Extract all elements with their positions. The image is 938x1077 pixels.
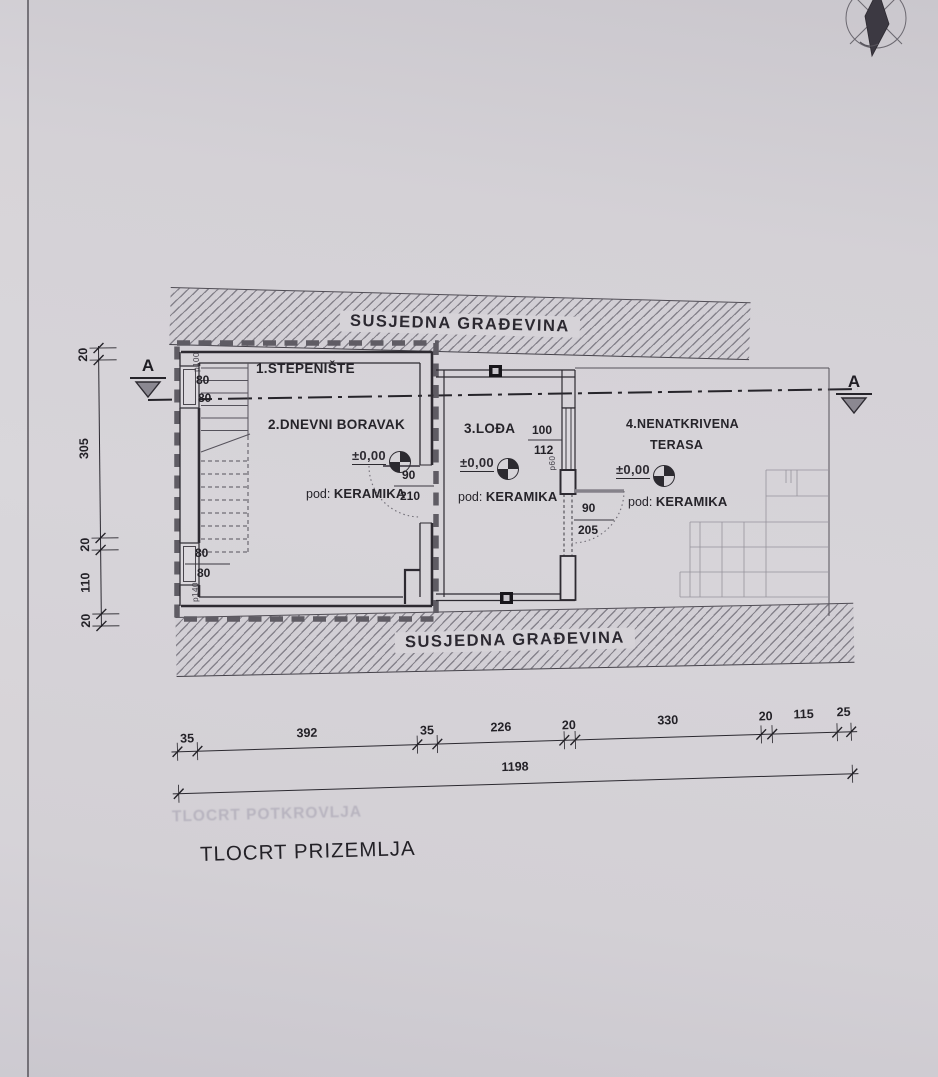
room-label-lodja: 3.LOĐA bbox=[464, 421, 515, 436]
section-line bbox=[148, 389, 858, 400]
section-triangle-icon bbox=[133, 380, 163, 400]
dim-lines-v bbox=[60, 340, 139, 641]
room-label-stepeniste: 1.STEPENIŠTE bbox=[256, 361, 355, 376]
floor-terasa: pod: KERAMIKA bbox=[628, 494, 727, 509]
floor-value: KERAMIKA bbox=[486, 489, 558, 504]
lodja-columns bbox=[489, 365, 513, 604]
lodja-walls bbox=[436, 370, 576, 601]
level-symbol-icon bbox=[653, 465, 675, 487]
drawing-sheet: SUSJEDNA GRAĐEVINA SUSJEDNA GRAĐEVINA bbox=[0, 0, 938, 1077]
block1-walls bbox=[180, 352, 432, 606]
dim-h-8: 25 bbox=[821, 704, 865, 719]
floor-value: KERAMIKA bbox=[334, 486, 406, 501]
dim-h-total: 1198 bbox=[493, 759, 537, 774]
door2-height: 205 bbox=[578, 523, 598, 537]
parapet-note-win1: p100 bbox=[192, 345, 202, 379]
room-label-dnevni: 2.DNEVNI BORAVAK bbox=[268, 417, 405, 432]
dim-v-0: 20 bbox=[76, 333, 89, 377]
dim-h-4: 20 bbox=[547, 717, 591, 732]
parapet-note-win2: p140 bbox=[191, 575, 201, 609]
floor-lodja: pod: KERAMIKA bbox=[458, 489, 557, 504]
floor-prefix: pod: bbox=[306, 487, 330, 501]
win1-height: 80 bbox=[198, 391, 211, 405]
level-value: ±0,00 bbox=[352, 448, 386, 465]
block1-dashed-boundary bbox=[177, 343, 436, 619]
dim-h-1: 392 bbox=[285, 725, 329, 740]
dim-h-7: 115 bbox=[781, 707, 825, 722]
level-symbol-icon bbox=[497, 458, 519, 480]
dim-h-5: 330 bbox=[646, 713, 690, 728]
section-triangle-icon bbox=[839, 396, 869, 416]
door2-width: 90 bbox=[582, 501, 595, 515]
room-label-terasa-2: TERASA bbox=[650, 438, 703, 452]
level-dnevni: ±0,00 bbox=[352, 448, 411, 465]
dim-h-2: 35 bbox=[405, 723, 449, 738]
dimension-chain-vertical: 20 305 20 110 20 bbox=[60, 340, 139, 641]
door1-width: 90 bbox=[402, 468, 415, 482]
level-lodja: ±0,00 bbox=[460, 455, 519, 472]
win2-width: 80 bbox=[195, 546, 208, 560]
section-letter: A bbox=[834, 372, 874, 392]
room-label-terasa-1: 4.NENATKRIVENA bbox=[626, 417, 739, 431]
level-value: ±0,00 bbox=[460, 455, 494, 472]
level-terasa: ±0,00 bbox=[616, 462, 675, 479]
section-marker-right: A bbox=[834, 372, 874, 416]
floor-dnevni: pod: KERAMIKA bbox=[306, 486, 405, 501]
dim-v-1: 305 bbox=[77, 427, 90, 471]
dim-h-0: 35 bbox=[165, 731, 209, 746]
dim-v-4: 20 bbox=[79, 599, 92, 643]
parapet-note-win3: p60 bbox=[548, 446, 558, 480]
floor-prefix: pod: bbox=[628, 495, 652, 509]
plan-linework bbox=[0, 0, 938, 1077]
section-marker-line bbox=[836, 393, 872, 395]
floor-prefix: pod: bbox=[458, 490, 482, 504]
door1-height: 210 bbox=[400, 489, 420, 503]
dim-h-3: 226 bbox=[479, 720, 523, 735]
floor-value: KERAMIKA bbox=[656, 494, 728, 509]
level-value: ±0,00 bbox=[616, 462, 650, 479]
win3-width: 100 bbox=[532, 423, 552, 437]
